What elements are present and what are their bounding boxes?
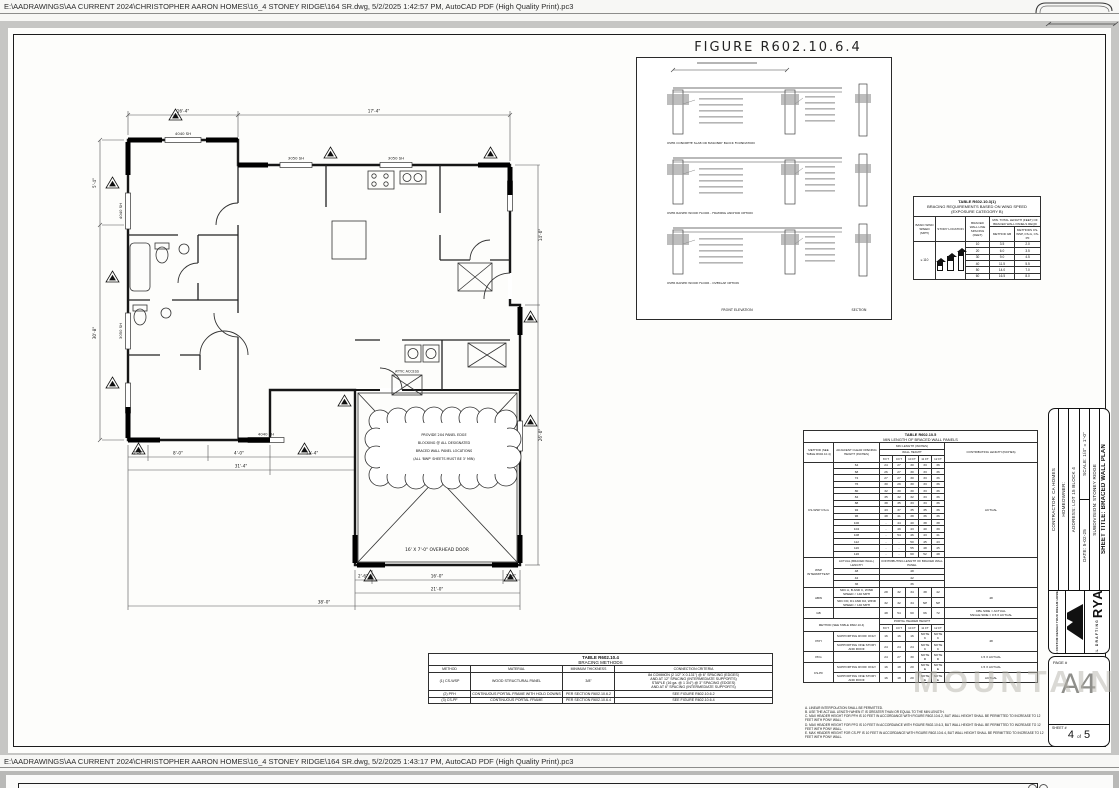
table-cell: ACTUAL xyxy=(945,462,1038,558)
title-block: CONTRACTOR: CA HOMES HOMEOWNER: ADDRESS:… xyxy=(1048,408,1110,654)
interior-walls xyxy=(128,140,510,440)
svg-text:BLOCKING @ ALL DESIGNATED: BLOCKING @ ALL DESIGNATED xyxy=(418,441,471,445)
svg-text:31'-4": 31'-4" xyxy=(235,464,248,469)
table-cell: TABLE R602.10.4BRACING METHODS xyxy=(429,654,773,666)
table-cell: NOTE E xyxy=(932,673,945,683)
circle-icon xyxy=(1028,784,1037,788)
plot-stamp-bottom-text: E:\AADRAWINGS\AA CURRENT 2024\CHRISTOPHE… xyxy=(4,757,573,766)
sheet-number-row: SHEET # 4 of 5 xyxy=(1049,724,1109,746)
svg-text:OVER RAISED WOOD FLOOR - FRAMI: OVER RAISED WOOD FLOOR - FRAMING ANCHOR … xyxy=(667,211,753,215)
table-cell: 1.5 X ACTUAL xyxy=(945,662,1038,672)
table-cell: 32 xyxy=(880,598,893,608)
laundry-appliances xyxy=(405,263,506,367)
table-cell: BASIC WIND SPEED (MPH) xyxy=(914,217,936,242)
table-cell: 16 xyxy=(880,631,893,641)
table-cell xyxy=(834,652,880,662)
table-cell: 3/8" xyxy=(563,672,615,690)
table-cell: 38 xyxy=(919,587,932,597)
braced-wall-panels xyxy=(128,140,520,565)
table-cell: METHOD GB xyxy=(990,227,1015,241)
table-cell: 18 xyxy=(893,673,906,683)
svg-text:OVER CONCRETE SLAB OR MASONRY: OVER CONCRETE SLAB OR MASONRY BLOCK FOUN… xyxy=(667,141,755,145)
table-footnotes: A. LINEAR INTERPOLATION SHALL BE PERMITT… xyxy=(805,706,1047,739)
page-block: PAGE # A4 SHEET # 4 of 5 xyxy=(1048,656,1110,747)
next-page-fragment xyxy=(0,771,1119,788)
table-cell: NOTE C xyxy=(919,641,932,651)
table-cell xyxy=(945,558,1038,588)
table-cell: 16 xyxy=(880,662,893,672)
svg-text:14'-0": 14'-0" xyxy=(538,229,543,242)
table-cell: DBL SIDE = ACTUALSNGLE SIDE = 0.5 X ACTU… xyxy=(945,608,1038,618)
table-cell: NOTE E xyxy=(919,662,932,672)
table-cell: 8d COMMON (2 1/2" X 0.131") @ 6" SPACING… xyxy=(615,672,773,690)
table-cell: 20 xyxy=(906,662,919,672)
kitchen-appliances xyxy=(332,171,426,259)
table-cell: 24 xyxy=(906,641,919,651)
title-block-info: CONTRACTOR: CA HOMES HOMEOWNER: ADDRESS:… xyxy=(1049,409,1109,590)
svg-text:3050 SH: 3050 SH xyxy=(388,156,404,161)
svg-text:4040 SH: 4040 SH xyxy=(118,203,123,219)
svg-text:(ALL 'BWP' SHEETS MUST BE 3' M: (ALL 'BWP' SHEETS MUST BE 3' MIN) xyxy=(413,457,475,461)
company-tagline: CUSTOM DESIGN YOUR DREAM HOME xyxy=(1055,591,1059,651)
plot-stamp-top-text: E:\AADRAWINGS\AA CURRENT 2024\CHRISTOPHE… xyxy=(4,2,573,11)
svg-text:FRONT ELEVATION: FRONT ELEVATION xyxy=(721,308,753,312)
table-cell: MIN. TOTAL LENGTH (FEET) OF BRACED WALL … xyxy=(990,217,1041,227)
table-cell: 54 xyxy=(893,608,906,618)
table-cell: SUPPORTING ONE STORY AND ROOF xyxy=(834,673,880,683)
svg-text:5'-4": 5'-4" xyxy=(92,178,97,188)
revision-cloud: PROVIDE 2X4 PANEL EDGE BLOCKING @ ALL DE… xyxy=(365,407,521,489)
svg-text:16'-0": 16'-0" xyxy=(431,574,444,579)
plot-stamp-bottom: E:\AADRAWINGS\AA CURRENT 2024\CHRISTOPHE… xyxy=(0,755,1119,772)
floor-plan: 16'-4" 17'-4" 5'-4" 30'-8" 2'-8" 8'-0" 4… xyxy=(80,85,580,630)
svg-text:11'-4": 11'-4" xyxy=(306,451,319,456)
svg-text:3050 SH: 3050 SH xyxy=(288,156,304,161)
table-cell: ABW xyxy=(804,587,834,608)
mountain-logo-icon xyxy=(1067,602,1083,642)
table-cell: 48 xyxy=(945,631,1038,652)
sheet-title-field: SHEET TITLE: BRACED WALL PLAN xyxy=(1101,444,1107,554)
dimension-lines xyxy=(98,111,540,610)
table-cell: PER SECTION R602.10.6.4 xyxy=(563,697,615,703)
plot-stamp-top: E:\AADRAWINGS\AA CURRENT 2024\CHRISTOPHE… xyxy=(0,0,1119,21)
exterior-walls xyxy=(128,140,520,565)
svg-text:21'-0": 21'-0" xyxy=(431,587,444,592)
previous-page-fragment xyxy=(1030,0,1119,27)
footnote: D. MAX HEADER HEIGHT FOR PFG IS 10 FEET … xyxy=(805,723,1047,731)
company-name-2: STEEL DRAFTING xyxy=(1095,619,1099,653)
company-name: RYAN xyxy=(1090,591,1105,618)
svg-text:PROVIDE 2X4 PANEL EDGE: PROVIDE 2X4 PANEL EDGE xyxy=(421,433,466,437)
table-cell: NOTE E xyxy=(932,662,945,672)
svg-text:4'-0": 4'-0" xyxy=(234,451,244,456)
svg-text:26'-0": 26'-0" xyxy=(538,429,543,442)
date-field: DATE: 5-02-25 xyxy=(1082,529,1087,562)
next-page-border xyxy=(18,783,1038,788)
wind-bracing-table: TABLE R602.10.3(1)BRACING REQUIREMENTS B… xyxy=(913,196,1040,280)
table-cell: TABLE R602.10.3(1)BRACING REQUIREMENTS B… xyxy=(914,197,1041,217)
table-cell: 24 xyxy=(880,641,893,651)
homeowner-field: HOMEOWNER: xyxy=(1061,482,1066,517)
sheet-number: 4 xyxy=(1068,729,1074,741)
table-cell: WSP INTERMITTENT xyxy=(804,558,834,588)
table-cell: 32 xyxy=(893,587,906,597)
table-cell xyxy=(834,608,880,618)
attic-access-label: ATTIC ACCESS xyxy=(395,370,419,374)
table-cell xyxy=(936,241,966,279)
table-cell: 34 xyxy=(906,587,919,597)
screenshot-root: E:\AADRAWINGS\AA CURRENT 2024\CHRISTOPHE… xyxy=(0,0,1119,788)
table-cell: 16 xyxy=(906,631,919,641)
table-cell: 24 xyxy=(893,641,906,651)
table-cell: ACTUAL (BRACED WALL) LENGTH xyxy=(834,558,880,568)
table-cell: SDC A, B AND C, WIND SPEED < 140 MPH xyxy=(834,587,880,597)
table-cell: SDC D0, D1 AND D2, WIND SPEED < 140 MPH xyxy=(834,598,880,608)
footnote: C. MAX HEADER HEIGHT FOR PFH IS 10 FEET … xyxy=(805,714,1047,722)
table-cell: 34 xyxy=(906,598,919,608)
table-cell: 16 xyxy=(880,673,893,683)
table-cell: NOTE C xyxy=(919,631,932,641)
table-cell: 48 xyxy=(880,608,893,618)
table-cell: ADJACENT CLEAR OPENING HEIGHT (INCHES) xyxy=(834,443,880,462)
windows xyxy=(126,138,523,452)
svg-text:BRACED WALL PANEL LOCATIONS: BRACED WALL PANEL LOCATIONS xyxy=(416,449,472,453)
table-cell: 18 xyxy=(893,662,906,672)
table-cell: 1.5 X ACTUAL xyxy=(945,652,1038,662)
table-cell: METHOD (SEE TABLE R602.10.4) xyxy=(804,443,834,462)
svg-text:4040 SH: 4040 SH xyxy=(258,432,274,437)
svg-text:30'-8": 30'-8" xyxy=(92,327,97,340)
table-cell: (3) CS-PF xyxy=(429,697,471,703)
svg-text:4040 SH: 4040 SH xyxy=(175,131,191,136)
table-cell: CS-PF xyxy=(804,662,834,683)
min-length-table: TABLE R602.10.5MIN LENGTH OF BRACED WALL… xyxy=(803,430,1037,683)
subdivision-field: SUBDIVISION: STONEY RIDGE xyxy=(1092,464,1097,536)
table-cell: NOTE E xyxy=(919,673,932,683)
table-cell: NOTE D xyxy=(919,652,932,662)
table-cell: SUPPORTING ROOF ONLY xyxy=(834,662,880,672)
page-number: A4 xyxy=(1049,669,1109,700)
table-cell: 24 xyxy=(880,652,893,662)
table-cell: 66 xyxy=(919,608,932,618)
bracing-methods-table: TABLE R602.10.4BRACING METHODSMETHODMATE… xyxy=(428,653,772,704)
table-cell: CONTRIBUTING LENGTH OF BRACED WALL PANEL xyxy=(880,558,945,568)
table-cell: 42 xyxy=(932,587,945,597)
table-cell: 20 xyxy=(906,673,919,683)
figure-title: FIGURE R602.10.6.4 xyxy=(608,40,948,55)
table-cell: GB xyxy=(804,608,834,618)
svg-text:17'-4": 17'-4" xyxy=(368,109,381,114)
table-cell: NOTE C xyxy=(932,631,945,641)
table-cell: NP xyxy=(919,598,932,608)
svg-text:8'-0": 8'-0" xyxy=(173,451,183,456)
drawing-sheet: 16'-4" 17'-4" 5'-4" 30'-8" 2'-8" 8'-0" 4… xyxy=(8,28,1111,753)
table-cell: NOTE C xyxy=(932,641,945,651)
doors xyxy=(178,203,512,392)
next-page-sheet xyxy=(6,775,1113,788)
table-cell: TABLE R602.10.5MIN LENGTH OF BRACED WALL… xyxy=(804,431,1038,443)
scale-field: SCALE: 1/4" = 1'-0" xyxy=(1082,432,1087,476)
page-number-label: PAGE # xyxy=(1053,660,1067,665)
svg-text:3050 SH: 3050 SH xyxy=(118,323,123,339)
footnote: E. MAX HEADER HEIGHT FOR CS-PF IS 10 FEE… xyxy=(805,731,1047,739)
sheet-total: 5 xyxy=(1084,729,1090,741)
braced-wall-markers xyxy=(106,109,537,581)
svg-text:SECTION: SECTION xyxy=(852,308,867,312)
table-cell: WOOD STRUCTURAL PANEL xyxy=(471,672,563,690)
table-cell: ≤ 110 xyxy=(914,241,936,279)
bath-fixtures xyxy=(130,243,189,325)
table-cell: 60 xyxy=(906,608,919,618)
table-cell: 30 xyxy=(906,652,919,662)
dimension-labels: 16'-4" 17'-4" 5'-4" 30'-8" 2'-8" 8'-0" 4… xyxy=(92,109,543,605)
table-cell: PFG xyxy=(804,652,834,662)
table-cell: ACTUAL xyxy=(945,673,1038,683)
svg-text:38'-0": 38'-0" xyxy=(318,600,331,605)
table-cell: 48 xyxy=(945,587,1038,608)
table-cell: NOTE D xyxy=(932,652,945,662)
table-cell xyxy=(945,618,1038,631)
table-cell: 72 xyxy=(932,608,945,618)
table-cell: (1) CS-WSP xyxy=(429,672,471,690)
company-logo-block: CUSTOM DESIGN YOUR DREAM HOME Ph: Email: xyxy=(1049,590,1109,653)
table-cell: SUPPORTING ONE STORY AND ROOF xyxy=(834,641,880,651)
table-cell: METHODS CS-WSP, CS-G, CS-PF xyxy=(1015,227,1041,241)
table-cell: BRACED WALL LINE SPACING (FEET) xyxy=(966,217,990,242)
table-cell: 28 xyxy=(880,587,893,597)
svg-text:OVER RAISED WOOD FLOOR - OVERL: OVER RAISED WOOD FLOOR - OVERLAP OPTION xyxy=(667,281,739,285)
table-cell: METHOD (SEE TABLE R602.10.4) xyxy=(804,618,880,631)
svg-text:16'-4": 16'-4" xyxy=(177,109,190,114)
table-cell: CS-WSP CS-G xyxy=(804,462,834,558)
contractor-field: CONTRACTOR: CA HOMES xyxy=(1051,468,1056,531)
table-cell: STORY LOCATION xyxy=(936,217,966,242)
table-cell: PFH xyxy=(804,631,834,652)
table-cell: 16.5 xyxy=(990,273,1015,279)
table-cell: SUPPORTING ROOF ONLY xyxy=(834,631,880,641)
table-cell: 60 xyxy=(966,273,990,279)
sheet-of: of xyxy=(1077,734,1081,739)
table-cell: NP xyxy=(932,598,945,608)
address-field: ADDRESS: LOT 15 BLOCK 4 xyxy=(1071,467,1076,532)
figure-detail-drawing: FRONT ELEVATION SECTION OVER CONCRETE SL… xyxy=(637,58,891,319)
table-cell: CONTRIBUTING LENGTH (INCHES) xyxy=(945,443,1038,462)
table-cell: 32 xyxy=(893,598,906,608)
circle-icon xyxy=(1039,784,1048,788)
attic-access xyxy=(392,375,422,395)
company-phone: Ph: xyxy=(1055,651,1059,653)
figure-detail-box: FRONT ELEVATION SECTION OVER CONCRETE SL… xyxy=(636,57,892,320)
overhead-door-label: 16' X 7'-0" OVERHEAD DOOR xyxy=(405,547,469,553)
table-cell: CONTINUOUS PORTAL FRAME xyxy=(471,697,563,703)
table-cell: SEE FIGURE R602.10.6.4 xyxy=(615,697,773,703)
table-cell: 27 xyxy=(893,652,906,662)
table-cell: 8.0 xyxy=(1015,273,1041,279)
table-cell: 16 xyxy=(893,631,906,641)
